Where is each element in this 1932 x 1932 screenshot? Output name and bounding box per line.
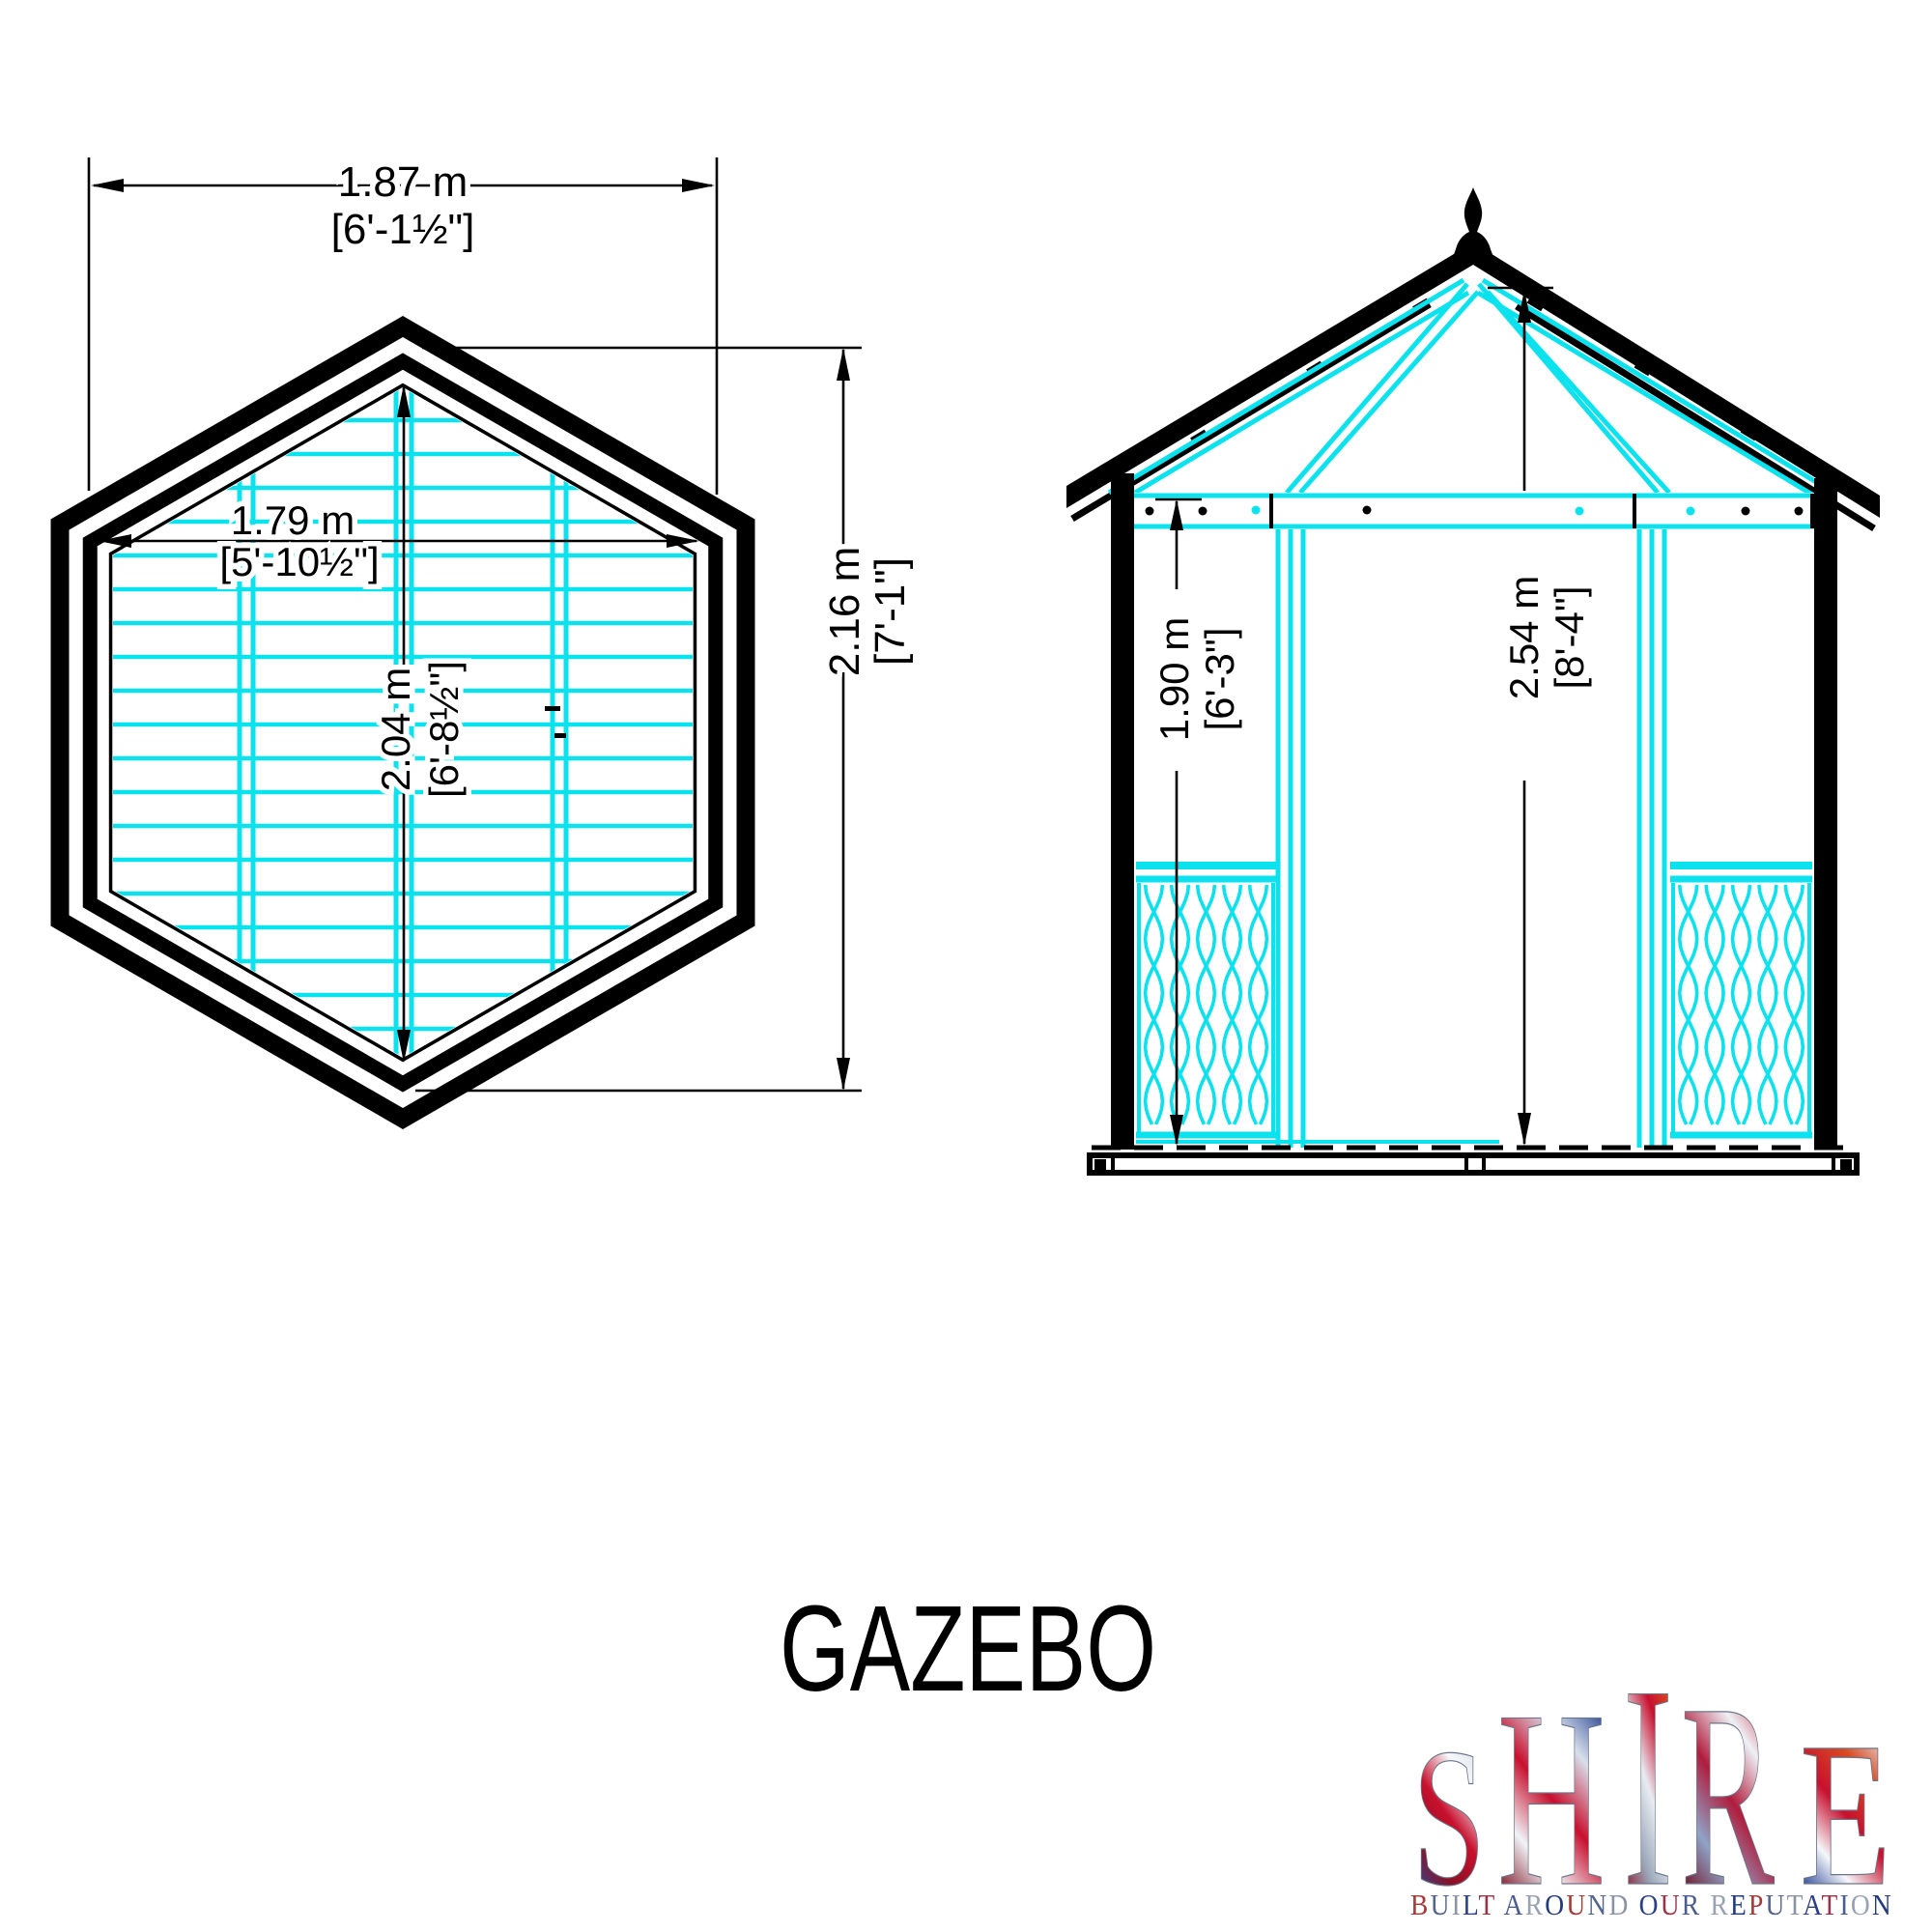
tagline-letter: U	[1661, 1888, 1682, 1921]
tagline-letter: I	[1452, 1888, 1463, 1921]
floor-bearer	[1090, 1155, 1857, 1173]
tagline-letter: O	[1545, 1888, 1566, 1921]
tagline-letter	[1631, 1888, 1639, 1921]
hip-rafter-left	[1300, 292, 1478, 493]
tagline-letter: O	[1851, 1888, 1872, 1921]
dim-imperial: [5'-10½"]	[219, 539, 379, 584]
corner-post-left	[1111, 473, 1134, 1150]
elev-dim-total-height: 2.54 m [8'-4"]	[1488, 288, 1592, 1146]
elevation-view: 1.90 m [6'-3"] 2.54 m [8'-4"]	[1066, 187, 1880, 1173]
tagline-letter: N	[1872, 1888, 1893, 1921]
arrowhead-up	[837, 348, 850, 381]
interior-post-right	[1639, 529, 1664, 1148]
tagline-letter: U	[1766, 1888, 1787, 1921]
tagline-letter: U	[1431, 1888, 1452, 1921]
dim-imperial: [6'-8½"]	[421, 661, 467, 798]
tagline-letter: E	[1730, 1888, 1748, 1921]
floor-fixing-dash	[545, 706, 560, 711]
arrowhead-left	[91, 179, 124, 192]
dim-metric: 2.04 m	[373, 668, 418, 791]
dim-imperial: [8'-4"]	[1547, 586, 1592, 690]
tagline-letter: O	[1639, 1888, 1661, 1921]
tagline-letter: A	[1504, 1888, 1525, 1921]
floor-fixing-dash	[554, 733, 566, 738]
dim-metric: 2.16 m	[821, 547, 868, 677]
dim-metric: 1.79 m	[231, 497, 355, 543]
balustrade-panel-right	[1670, 866, 1812, 1135]
tagline-letter: R	[1710, 1888, 1730, 1921]
brand-letter: I	[1623, 1626, 1673, 1932]
tagline-letter: N	[1587, 1888, 1608, 1921]
tagline-letter: U	[1566, 1888, 1587, 1921]
dim-metric: 1.87 m	[338, 158, 469, 206]
brand-letters: SHIRE	[1412, 1626, 1891, 1932]
dim-imperial: [6'-1½"]	[331, 206, 475, 253]
arrowhead-down	[837, 1058, 850, 1091]
arrowhead-right	[682, 179, 715, 192]
tagline-letter: L	[1463, 1888, 1478, 1921]
tagline-letter: P	[1748, 1888, 1766, 1921]
plan-dim-overall-depth: 2.16 m [7'-1"]	[415, 348, 914, 1091]
tagline-letter: R	[1525, 1888, 1546, 1921]
dim-imperial: [6'-3"]	[1197, 628, 1242, 731]
arrowhead-down	[1518, 1113, 1531, 1146]
tagline-letter: T	[1479, 1888, 1497, 1921]
spindles	[1146, 885, 1267, 1124]
dim-imperial: [7'-1"]	[867, 557, 914, 666]
spindles	[1680, 885, 1804, 1124]
interior-post-left	[1278, 529, 1303, 1148]
corner-post-right	[1814, 478, 1837, 1150]
tagline-letter: R	[1682, 1888, 1702, 1921]
tagline-letter: B	[1410, 1888, 1431, 1921]
tagline-letter: T	[1787, 1888, 1804, 1921]
tagline-letter: I	[1839, 1888, 1850, 1921]
dim-metric: 1.90 m	[1151, 617, 1197, 741]
dim-metric: 2.54 m	[1501, 576, 1547, 699]
shire-logo: SHIRE BUILT AROUND OUR REPUTATION	[1410, 1626, 1893, 1932]
tagline-letter	[1701, 1888, 1710, 1921]
fascia-band	[1111, 493, 1814, 529]
floor-deck	[1090, 1142, 1857, 1173]
brand-tagline: BUILT AROUND OUR REPUTATION	[1410, 1888, 1893, 1921]
gazebo-technical-drawing: 1.87 m [6'-1½"] 1.79 m [5'-10½"] 2.04 m …	[0, 0, 1932, 1932]
rafter-left-outer	[1135, 293, 1468, 493]
roof-slope-left	[1066, 242, 1473, 508]
tagline-letter: D	[1608, 1888, 1630, 1921]
rafter-right-outer	[1483, 280, 1826, 488]
tagline-letter: A	[1803, 1888, 1822, 1921]
tagline-letter: T	[1821, 1888, 1839, 1921]
tagline-letter	[1496, 1888, 1504, 1921]
drawing-title: GAZEBO	[780, 1580, 1156, 1717]
plan-view: 1.87 m [6'-1½"] 1.79 m [5'-10½"] 2.04 m …	[53, 157, 914, 1119]
roof-slope-right	[1473, 242, 1880, 518]
rafter-left-outer	[1109, 280, 1463, 493]
balustrade-panel-left	[1136, 866, 1276, 1135]
